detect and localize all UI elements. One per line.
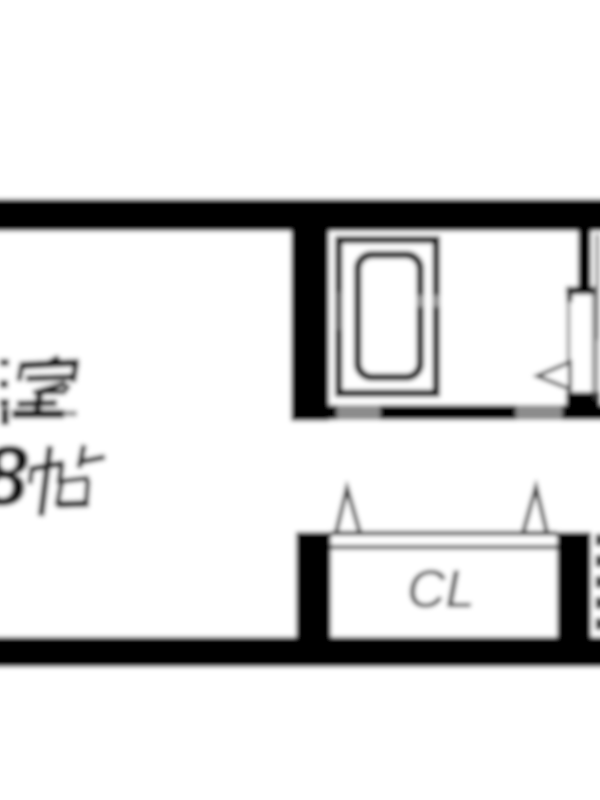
svg-text:8: 8 [0,429,29,524]
svg-text:CL: CL [407,560,475,619]
